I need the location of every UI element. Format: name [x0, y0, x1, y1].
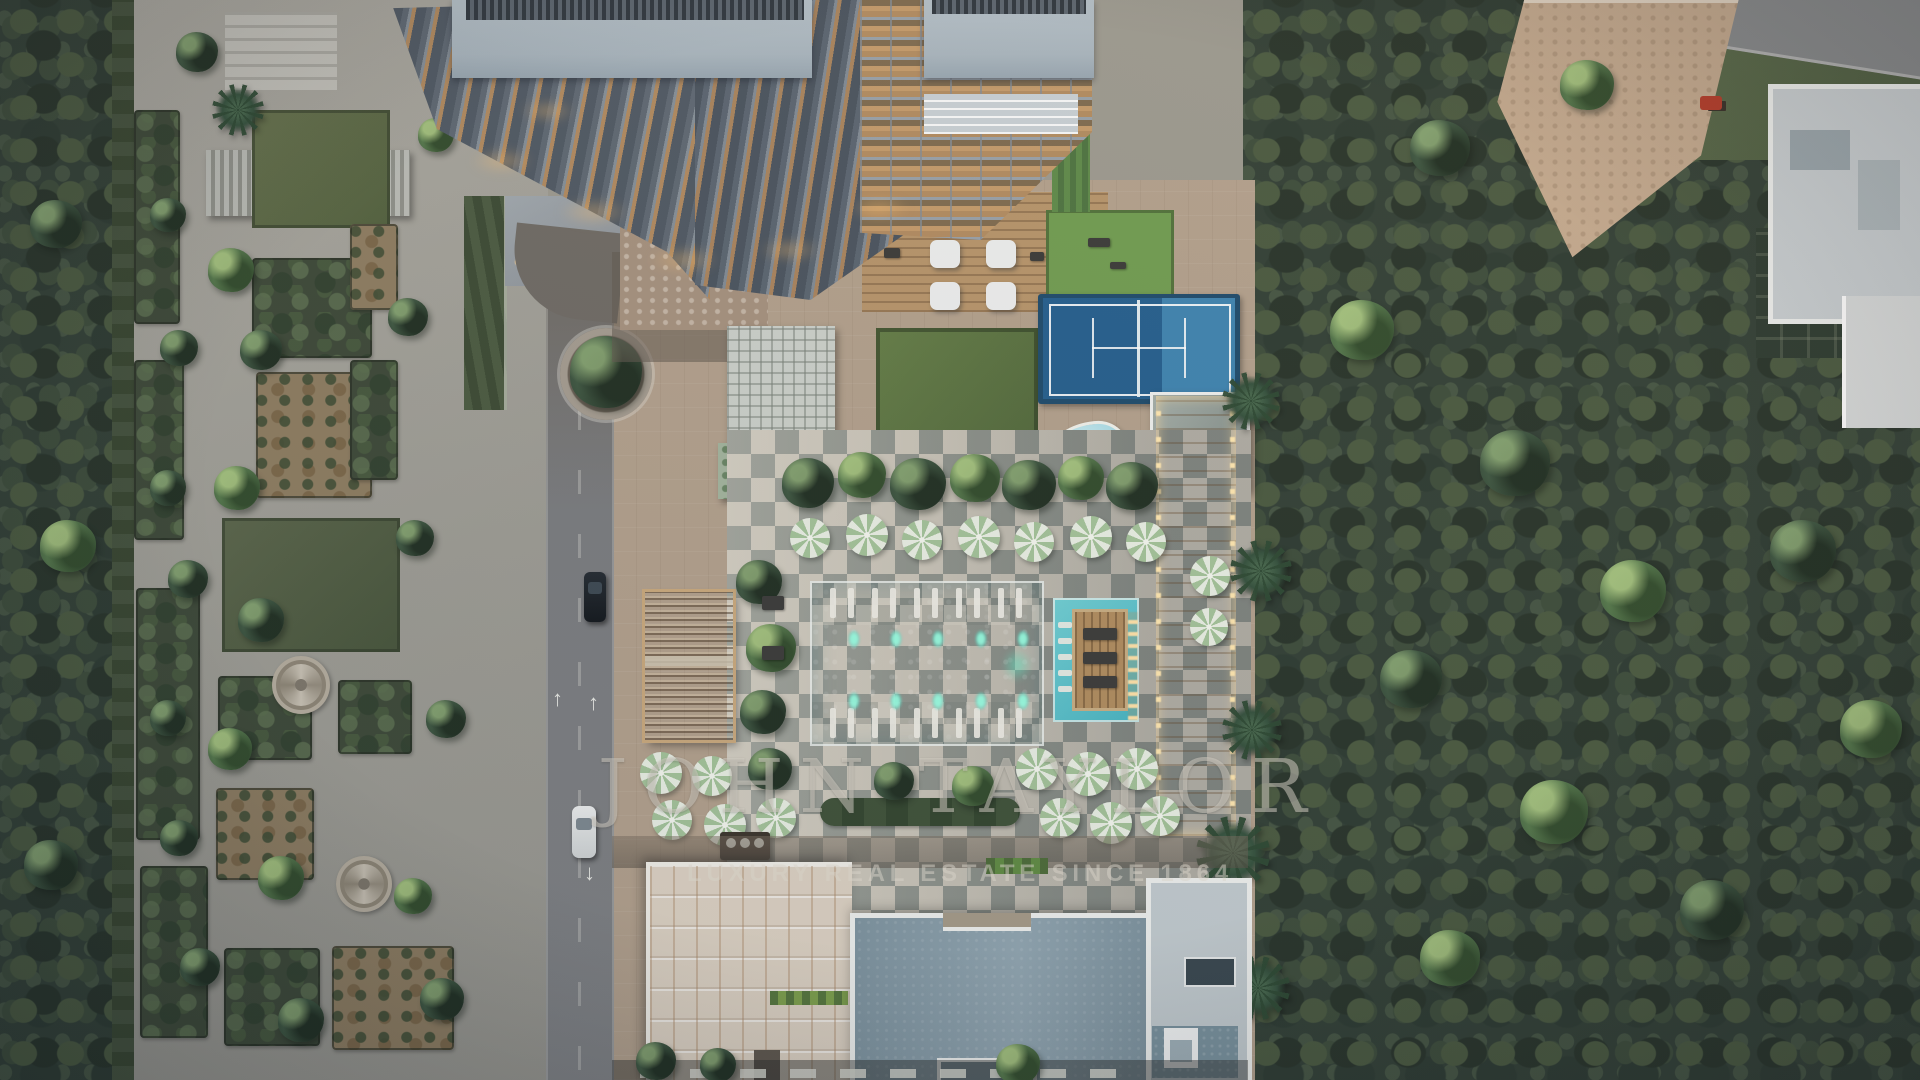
tree [214, 466, 260, 510]
tree [394, 878, 432, 914]
tree [150, 198, 186, 232]
stepping-stone [740, 1069, 766, 1078]
fitness-equipment [1088, 238, 1110, 247]
annex-skylight-inner [1170, 1040, 1192, 1062]
parasol [1126, 522, 1166, 562]
pool-lounger [1058, 654, 1072, 660]
pool-lounger [914, 708, 920, 738]
cabana-furniture [1083, 652, 1117, 664]
tree [240, 330, 282, 370]
roadside-hedge [464, 196, 507, 410]
aerial-masterplan-render: ↑ ↑ ↓ [0, 0, 1920, 1080]
tree [950, 454, 1000, 502]
pool-light [975, 630, 987, 648]
car-white [572, 806, 596, 858]
pool-lounger [932, 708, 938, 738]
plaza-lawn-north [252, 110, 390, 228]
slate-roof-notch [943, 913, 1031, 931]
cabana-canopy [930, 282, 960, 310]
tree [1520, 780, 1588, 844]
tree [1106, 462, 1158, 510]
tree [388, 298, 428, 336]
neighbor-terrace [1842, 296, 1920, 428]
tree [24, 840, 78, 890]
pool-lounger [956, 588, 962, 618]
palm-tree [1230, 540, 1292, 602]
tree [258, 856, 304, 900]
pool-light [1017, 692, 1029, 710]
pool-lounger [890, 588, 896, 618]
palm-tree [1222, 372, 1280, 430]
tree [396, 520, 434, 556]
pool-lounger [830, 708, 836, 738]
pool-lounger [974, 588, 980, 618]
tree [1680, 880, 1744, 940]
tree [1600, 560, 1666, 622]
pool-light [932, 692, 944, 710]
tree [168, 560, 208, 598]
tree [420, 978, 464, 1020]
balcony-glow [520, 100, 576, 122]
pool-lounger [914, 588, 920, 618]
tree [1420, 930, 1480, 986]
fitness-equipment [1110, 262, 1126, 269]
tree [208, 728, 252, 770]
stepping-stone [840, 1069, 866, 1078]
balcony-glow [648, 246, 720, 274]
garden-bed [134, 360, 184, 540]
tree [838, 452, 886, 498]
tree [180, 948, 220, 986]
plaza-steps [225, 12, 337, 90]
pool-light [890, 692, 902, 710]
cream-tiled-roof [646, 862, 852, 1080]
balcony-glow [758, 238, 822, 262]
deck-daybed [762, 596, 784, 610]
balcony-glow [848, 196, 910, 220]
tree [30, 200, 82, 248]
stepping-stone [1090, 1069, 1116, 1078]
pool-shelf-north [812, 583, 1042, 625]
balcony-glow [470, 148, 534, 174]
road-arrow: ↑ [552, 688, 563, 710]
pool-light [890, 630, 902, 648]
tree [1058, 456, 1104, 500]
striped-roof-deck [924, 94, 1078, 134]
plaza-hedge-strip [112, 0, 134, 1080]
pool-lounger [872, 708, 878, 738]
parasol [1070, 516, 1112, 558]
tree [996, 1044, 1040, 1080]
fitness-lawn [1046, 210, 1174, 298]
excavator [1700, 96, 1722, 110]
pool-lounger [1058, 622, 1072, 628]
pool-lounger [974, 708, 980, 738]
road-centerline [578, 330, 581, 1070]
tree [278, 998, 324, 1042]
watermark-brand: JOHN TAYLOR [598, 744, 1322, 830]
trellis-pergola-white [727, 326, 835, 443]
tree [150, 700, 186, 736]
tree [1480, 430, 1550, 496]
tree [40, 520, 96, 572]
wood-pergola-gap [645, 656, 733, 666]
parasol [846, 514, 888, 556]
parasol [902, 520, 942, 560]
tree [890, 458, 946, 510]
pool-light [932, 630, 944, 648]
tree [1330, 300, 1394, 360]
tree [782, 458, 834, 508]
pool-lounger [1058, 686, 1072, 692]
terrace-furniture [1030, 252, 1044, 261]
tree [1380, 650, 1442, 708]
pool-lounger [1016, 588, 1022, 618]
pool-lounger [848, 588, 854, 618]
garden-bed [338, 680, 412, 754]
annex-step-lights [1128, 612, 1138, 720]
terrace-furniture [884, 248, 900, 258]
pool-light [848, 630, 860, 648]
pool-lounger [830, 588, 836, 618]
stepping-stone [890, 1069, 916, 1078]
palm-tree [212, 84, 264, 136]
tree [1410, 120, 1470, 176]
pool-lounger [932, 588, 938, 618]
car-dark [584, 572, 606, 622]
pool-lounger [1016, 708, 1022, 738]
pool-lounger [998, 588, 1004, 618]
tree [1770, 520, 1836, 582]
pool-lounger [890, 708, 896, 738]
pool-lounger [872, 588, 878, 618]
watermark-tagline: LUXURY REAL ESTATE SINCE 1864 [687, 860, 1233, 888]
garden-bed [350, 360, 398, 480]
road-arrow: ↑ [588, 692, 599, 714]
roof-louvers [466, 0, 804, 20]
tennis-court-lines [1049, 304, 1231, 396]
cabana-canopy [930, 240, 960, 268]
tree [636, 1042, 676, 1080]
road-arrow: ↓ [584, 862, 595, 884]
tree [208, 248, 254, 292]
hedge-strip [770, 991, 848, 1005]
pool-light [1017, 630, 1029, 648]
car-dark-windshield [588, 582, 602, 594]
cabana-canopy [986, 282, 1016, 310]
tree [176, 32, 218, 72]
parasol [958, 516, 1000, 558]
pool-light [975, 692, 987, 710]
tree [160, 820, 198, 856]
parasol [1190, 608, 1228, 646]
pool-lounger [956, 708, 962, 738]
stepping-stone [940, 1069, 966, 1078]
balcony-glow [558, 198, 630, 226]
neighbor-roof-panel [1858, 160, 1900, 230]
tree [700, 1048, 736, 1080]
parasol [1014, 522, 1054, 562]
tree [1840, 700, 1902, 758]
pool-glow-patch [1002, 648, 1032, 682]
roof-louvers [932, 0, 1086, 14]
pool-lounger [1058, 638, 1072, 644]
spiral-fountain [336, 856, 392, 912]
tree [426, 700, 466, 738]
wood-pergola [645, 592, 733, 740]
tree [160, 330, 198, 366]
stepping-stone [1040, 1069, 1066, 1078]
tree [1560, 60, 1614, 110]
pool-shelf-south [812, 702, 1042, 744]
pool-lounger [848, 708, 854, 738]
parasol [1190, 556, 1230, 596]
spiral-fountain [272, 656, 330, 714]
tree [150, 470, 186, 506]
tennis-center-line [1092, 347, 1186, 349]
tree [1002, 460, 1056, 510]
stepping-stone [790, 1069, 816, 1078]
deck-lawn [876, 328, 1038, 440]
community-garden-bed [350, 224, 398, 310]
cabana-furniture [1083, 628, 1117, 640]
annex-glass [1184, 957, 1236, 987]
tree [740, 690, 786, 734]
tree [238, 598, 284, 642]
pool-light [848, 692, 860, 710]
car-white-windshield [576, 818, 592, 830]
parasol [790, 518, 830, 558]
deck-daybed [762, 646, 784, 660]
cabana-furniture [1083, 676, 1117, 688]
neighbor-roof-panel [1790, 130, 1850, 170]
cabana-canopy [986, 240, 1016, 268]
pool-lounger [998, 708, 1004, 738]
pool-lounger [1058, 670, 1072, 676]
